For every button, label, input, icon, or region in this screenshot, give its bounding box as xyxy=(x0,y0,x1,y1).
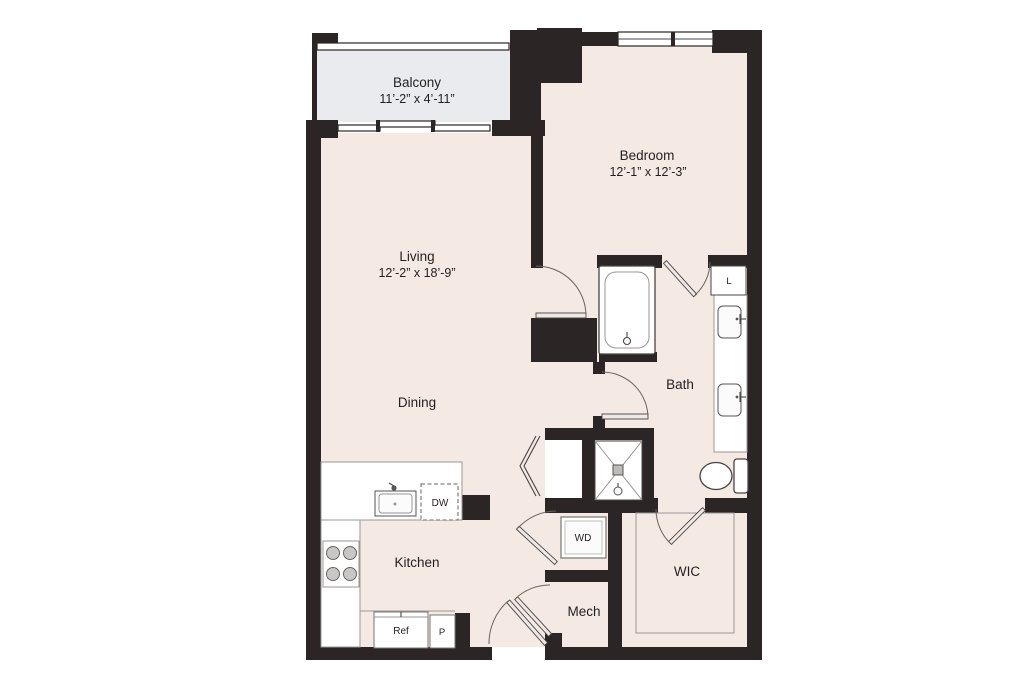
label-linen: L xyxy=(726,276,731,287)
bath-hall-door-opening xyxy=(593,374,605,416)
entry-corridor-floor xyxy=(531,362,545,647)
wic-north-wall-east xyxy=(705,498,747,513)
bedroom-vestibule-floor xyxy=(543,256,597,318)
living-north-west-wall xyxy=(306,120,338,138)
room-label-kitchen: Kitchen xyxy=(394,555,439,570)
bedroom-door-opening xyxy=(531,268,543,318)
room-label-bath: Bath xyxy=(666,377,694,392)
bedroom-window-mullion xyxy=(671,32,675,46)
room-dims-bedroom: 12’-1” x 12’-3” xyxy=(609,165,686,179)
closet-east-wall xyxy=(582,440,595,500)
south-wall-west xyxy=(306,647,492,660)
balcony-slider-panel-1 xyxy=(338,125,380,131)
slider-mullion-2 xyxy=(431,120,435,132)
stove-fixture xyxy=(323,541,359,587)
bathtub-fixture xyxy=(599,266,655,354)
label-pantry: P xyxy=(439,627,445,638)
room-label-dining: Dining xyxy=(398,395,436,410)
room-dims-living: 12’-2” x 18’-9” xyxy=(378,266,455,280)
label-washer-dryer: WD xyxy=(575,533,592,544)
closet-shower-north-wall xyxy=(545,428,654,440)
west-wall xyxy=(306,120,321,660)
room-label-bedroom: Bedroom xyxy=(620,148,675,163)
label-refrigerator: Ref xyxy=(393,626,409,637)
floorplan-drawing: Balcony 11’-2” x 4’-11” Bedroom 12’-1” x… xyxy=(0,0,1024,691)
mech-door-opening xyxy=(545,582,558,633)
balcony-slider-panel-2 xyxy=(378,121,435,127)
room-label-living: Living xyxy=(399,249,434,264)
kitchen-southeast-stub xyxy=(455,613,470,647)
kitchen-counter-end-wall xyxy=(458,495,490,520)
balcony-railing xyxy=(317,43,509,50)
slider-mullion-1 xyxy=(376,120,380,132)
room-label-mech: Mech xyxy=(567,604,600,619)
mech-east-wall xyxy=(608,513,622,647)
bedroom-north-wall xyxy=(580,32,622,46)
bedroom-jog-wall xyxy=(537,28,582,83)
wd-mech-divider-wall xyxy=(545,570,608,582)
east-wall xyxy=(747,30,762,660)
balcony-east-wall xyxy=(510,30,541,122)
floorplan-page: Balcony 11’-2” x 4’-11” Bedroom 12’-1” x… xyxy=(0,0,1024,691)
south-wall-east xyxy=(545,647,762,660)
coat-closet-interior xyxy=(545,434,582,500)
wic-door-opening xyxy=(658,498,705,513)
room-dims-balcony: 11’-2” x 4’-11” xyxy=(379,92,454,106)
balcony-slider-panel-3 xyxy=(433,125,490,131)
living-bedroom-wall xyxy=(531,133,543,268)
living-bath-wall-block xyxy=(531,318,597,362)
balcony-west-wall xyxy=(312,35,317,123)
room-label-balcony: Balcony xyxy=(393,75,441,90)
shower-fixture xyxy=(595,441,642,500)
northeast-corner-wall xyxy=(712,30,762,53)
room-label-wic: WIC xyxy=(674,564,700,579)
shower-east-wall xyxy=(642,440,654,498)
label-dishwasher: DW xyxy=(432,498,449,509)
toilet-fixture xyxy=(700,459,748,493)
